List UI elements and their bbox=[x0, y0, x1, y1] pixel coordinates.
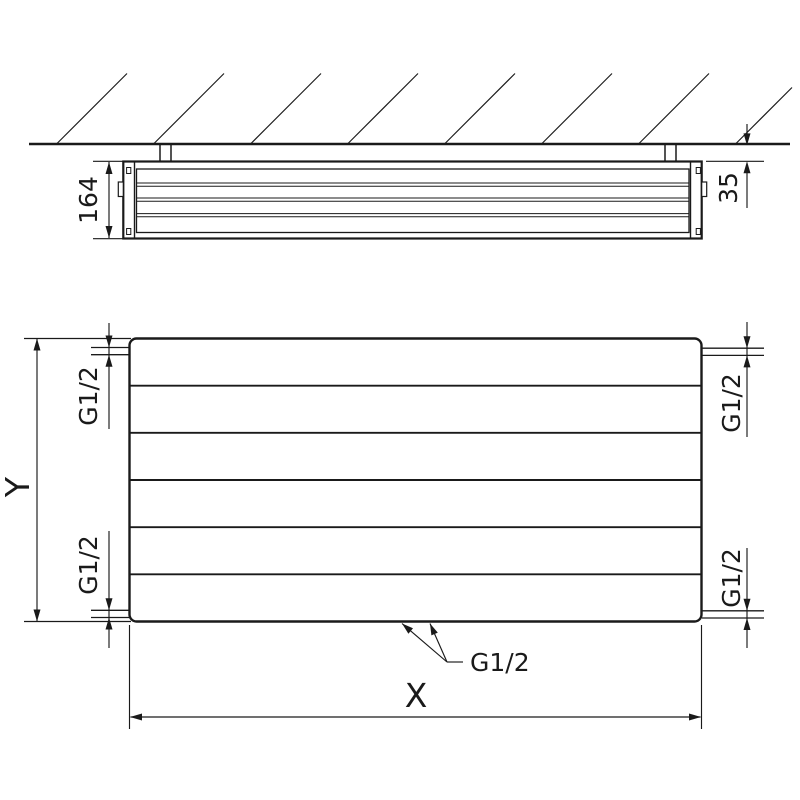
dimension-depth-164: 164 bbox=[74, 161, 123, 238]
connection-stub-top-right bbox=[702, 348, 764, 355]
depth-dimension-label: 164 bbox=[74, 176, 103, 224]
leader-thread-bottom-center: G1/2 bbox=[402, 624, 530, 678]
dimension-thread-top-right: G1/2 bbox=[717, 322, 751, 437]
dimension-wall-distance-35: 35 bbox=[706, 124, 764, 208]
front-view: G1/2 G1/2 G1/2 G1/2 Y bbox=[0, 322, 764, 729]
dimension-thread-bottom-left: G1/2 bbox=[74, 531, 113, 648]
width-dimension-label: X bbox=[405, 676, 428, 715]
thread-bottom-right-label: G1/2 bbox=[717, 548, 746, 608]
dimension-height-y: Y bbox=[0, 339, 131, 622]
connection-stub-top-left bbox=[91, 348, 129, 355]
mounting-brackets bbox=[160, 145, 676, 162]
connection-stub-bottom-right bbox=[702, 611, 764, 618]
wall-distance-dimension-label: 35 bbox=[714, 172, 743, 204]
casing-outline bbox=[123, 162, 701, 239]
thread-top-left-label: G1/2 bbox=[74, 366, 103, 426]
thread-bottom-center-label: G1/2 bbox=[470, 648, 530, 677]
thread-bottom-left-label: G1/2 bbox=[74, 535, 103, 595]
top-view: 164 35 bbox=[29, 74, 792, 239]
thread-top-right-label: G1/2 bbox=[717, 373, 746, 433]
dimension-width-x: X bbox=[130, 625, 702, 729]
radiator-cross-section-body bbox=[118, 162, 706, 239]
dimension-thread-bottom-right: G1/2 bbox=[717, 548, 751, 648]
wall-hatching bbox=[57, 74, 792, 144]
connection-stub-bottom-left bbox=[91, 610, 129, 617]
drawing-canvas: 164 35 bbox=[0, 0, 800, 800]
radiator-front-body bbox=[130, 339, 702, 622]
height-dimension-label: Y bbox=[0, 476, 37, 498]
radiator-technical-drawing: 164 35 bbox=[0, 0, 800, 800]
